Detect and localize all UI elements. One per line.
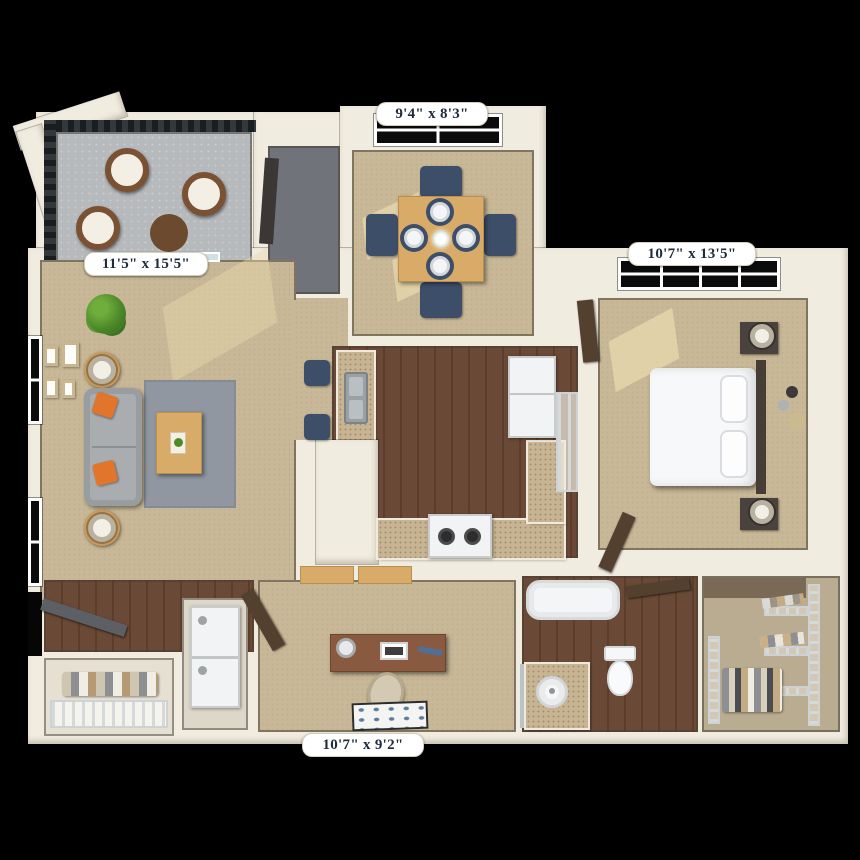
dining-chair	[420, 282, 462, 318]
front-door-opening	[28, 592, 42, 656]
hanging-clothes	[722, 668, 782, 712]
dining-chair	[366, 214, 398, 256]
dimension-label-living: 11'5" x 15'5"	[84, 252, 208, 276]
hanging-clothes	[62, 672, 158, 696]
stove	[428, 514, 492, 558]
living-window	[28, 336, 42, 424]
headboard	[756, 360, 766, 494]
stove-burner	[464, 528, 481, 545]
coat-closet-shelf	[50, 700, 168, 728]
place-setting	[404, 228, 424, 248]
floor-plan: 9'4" x 8'3" 10'7" x 13'5" 11'5" x 15'5" …	[0, 0, 860, 860]
wall-decor-circle	[786, 386, 798, 398]
wire-rack	[708, 636, 720, 724]
place-setting	[430, 202, 450, 222]
wall-decor-circle	[778, 400, 789, 411]
living-window	[28, 498, 42, 586]
wall-art	[62, 342, 79, 367]
wall-art	[44, 346, 58, 366]
table-lamp	[88, 514, 116, 542]
table-lamp	[88, 356, 116, 384]
sink-basin	[349, 400, 363, 419]
potted-plant	[86, 294, 126, 334]
dimension-label-bedroom: 10'7" x 13'5"	[628, 242, 756, 266]
balcony-railing-top	[50, 120, 256, 132]
place-setting	[430, 256, 450, 276]
window-mullion	[621, 273, 777, 276]
sink-basin	[349, 377, 363, 396]
accent-rug	[352, 701, 429, 732]
dimension-label-dining: 9'4" x 8'3"	[376, 102, 488, 126]
wall-art	[44, 378, 58, 398]
closet-shelf	[358, 566, 412, 584]
patio-table	[150, 214, 188, 252]
dryer-dial	[198, 666, 207, 675]
bar-stool	[304, 360, 330, 386]
desk-lamp	[336, 638, 356, 658]
place-setting	[456, 228, 476, 248]
bed-pillow	[720, 375, 748, 423]
patio-chair	[105, 148, 149, 192]
wire-shelf	[764, 646, 808, 656]
coffee-table-plant	[174, 438, 183, 447]
wire-rack	[808, 584, 820, 726]
computer-monitor	[380, 642, 408, 660]
bathtub	[526, 580, 620, 620]
dimension-label-den: 10'7" x 9'2"	[302, 733, 424, 757]
patio-chair	[76, 206, 120, 250]
stove-burner	[438, 528, 455, 545]
patio-chair	[182, 172, 226, 216]
refrigerator	[508, 356, 556, 438]
toilet-tank	[604, 646, 636, 661]
centerpiece	[432, 230, 450, 248]
kitchen-sink	[344, 372, 368, 424]
washer-dryer-split	[192, 656, 238, 659]
window-mullion	[377, 129, 499, 132]
monitor-screen	[385, 647, 403, 655]
washer-dial	[198, 616, 207, 625]
window-mullion	[31, 379, 39, 382]
toilet-bowl	[607, 660, 633, 696]
washer-dryer	[190, 606, 240, 708]
vanity-faucet	[549, 688, 555, 694]
dining-chair	[420, 166, 462, 198]
kitchen-wall-block	[316, 440, 378, 564]
table-lamp	[750, 324, 774, 348]
bar-stool	[304, 414, 330, 440]
refrigerator-door-line	[510, 393, 554, 395]
bed-pillow	[720, 430, 748, 478]
wall-decor-circle	[788, 412, 806, 430]
dining-chair	[484, 214, 516, 256]
wall-art	[62, 380, 75, 398]
window-mullion	[31, 541, 39, 544]
balcony-railing-left	[44, 120, 56, 268]
closet-shelf	[300, 566, 354, 584]
sofa-seam	[92, 446, 136, 448]
table-lamp	[750, 500, 774, 524]
pantry-shelves	[556, 392, 578, 492]
